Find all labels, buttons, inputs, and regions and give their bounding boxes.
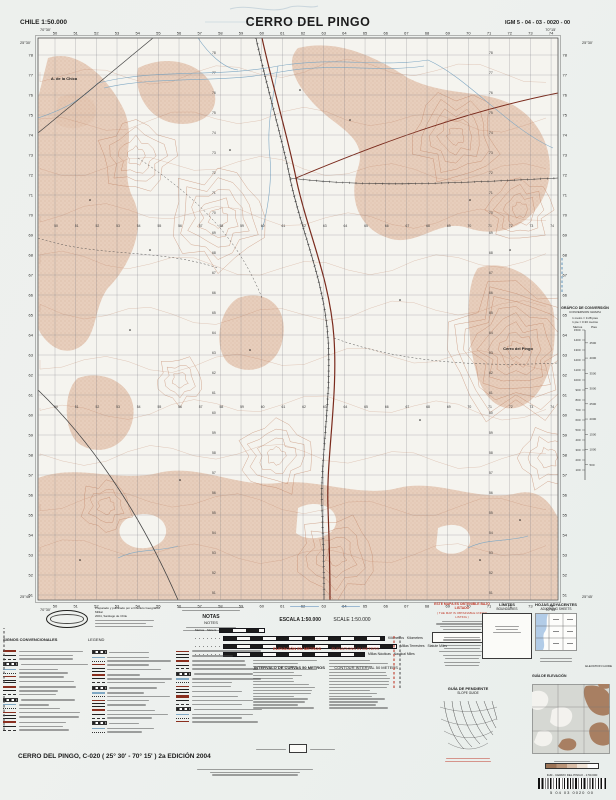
legend-symbol: [176, 665, 189, 666]
vertical-red-note: [393, 636, 395, 688]
grid-label: 1100: [574, 368, 581, 372]
legend-symbol: [3, 662, 18, 666]
grid-label: 59: [29, 432, 34, 437]
grid-label: 54: [563, 532, 568, 537]
grid-label: 55: [29, 512, 34, 517]
grid-label: 25°45': [582, 595, 593, 599]
grid-label: 800: [575, 398, 580, 402]
legend-row: [3, 712, 88, 714]
grid-label: 53: [115, 31, 120, 36]
grid-label: 51: [75, 405, 79, 409]
conversion-sub2: 1 pie = 0.30 metros: [556, 320, 614, 324]
grid-label: 57: [199, 224, 203, 228]
micro-text-line: [212, 774, 297, 775]
slope-guide-block: GUÍA DE PENDIENTE SLOPE GUIDE: [436, 686, 500, 762]
legend-row: [92, 731, 173, 733]
grid-label: 70: [212, 211, 216, 215]
grid-label: 51: [75, 224, 79, 228]
legend-row: [176, 654, 261, 658]
legend-row: [92, 660, 173, 662]
grid-label: 78: [29, 52, 34, 57]
micro-text-line: [445, 658, 478, 659]
grid-label: 65: [364, 405, 368, 409]
elevation-color-bar: [545, 763, 599, 769]
legend-row: [3, 729, 88, 731]
grid-label: 76: [489, 91, 493, 95]
micro-text-line: [445, 761, 492, 762]
grid-label: 54: [29, 532, 34, 537]
grid-label: 1300: [574, 348, 581, 352]
imprint-line: IGM - CERRO DEL PINGO - 1:50.000: [532, 773, 612, 777]
micro-text-line: [444, 648, 481, 649]
micro-text-line: [329, 672, 386, 673]
igm-seal: [46, 610, 88, 628]
grid-label: 63: [29, 352, 34, 357]
grid-label: 63: [323, 405, 327, 409]
grid-label: 52: [489, 571, 493, 575]
legend-row: [92, 696, 173, 698]
legend-row: [176, 689, 261, 693]
grid-label: 74: [29, 132, 34, 137]
legend-row: [176, 695, 261, 697]
legend-symbol: [3, 730, 16, 731]
micro-text-line: [329, 669, 369, 670]
grid-label: 70: [563, 212, 568, 217]
grid-label: 63: [563, 352, 568, 357]
grid-label: 54: [489, 531, 493, 535]
grid-label: 54: [137, 405, 141, 409]
legend-symbol: [92, 700, 105, 701]
micro-text-line: [329, 678, 390, 679]
micro-text-line: [253, 707, 314, 708]
legend-symbol: [176, 721, 189, 722]
legend-symbol: [3, 694, 16, 695]
micro-text-line: [253, 660, 317, 661]
grid-label: 51: [212, 591, 216, 595]
micro-text-line: [253, 687, 315, 688]
micro-text-line: [443, 639, 482, 640]
legend-row: [176, 672, 261, 676]
grid-label: 55: [157, 224, 161, 228]
legend-symbol: [176, 672, 191, 676]
grid-label: 75: [563, 112, 568, 117]
legend-row: [176, 700, 261, 702]
legend-symbol: [176, 704, 189, 705]
grid-label: 75: [29, 112, 34, 117]
legend-row: [3, 708, 88, 710]
micro-text-line: [253, 690, 312, 691]
grid-label: 4000: [590, 356, 597, 360]
grid-label: 71: [29, 192, 34, 197]
grid-label: 4500: [590, 341, 597, 345]
legend-row: [92, 703, 173, 707]
legend-row: [3, 694, 88, 696]
micro-text-line: [444, 662, 480, 663]
grid-label: 54: [137, 224, 141, 228]
legend-symbol: [92, 696, 105, 697]
legend-row: [176, 704, 261, 706]
legend-row: [3, 726, 88, 728]
legend-row: [176, 717, 261, 719]
legend-row: [92, 686, 173, 690]
micro-text-line: [329, 696, 372, 697]
grid-label: 62: [212, 371, 216, 375]
micro-text-line: [329, 690, 370, 691]
elevation-guide-block: GUÍA DE ELEVACIÓN ELEVATION GUIDE IGM - …: [532, 664, 612, 795]
grid-label: 59: [240, 224, 244, 228]
legend-symbol: [3, 690, 16, 691]
legend-row: [176, 664, 261, 666]
grid-label: 61: [281, 405, 285, 409]
grid-label: 62: [489, 371, 493, 375]
legend-row: [3, 704, 88, 706]
grid-label: 64: [563, 332, 568, 337]
grid-label: 1500: [574, 328, 581, 332]
micro-text-line: [444, 637, 481, 638]
grid-label: 55: [489, 511, 493, 515]
grid-label: 67: [404, 31, 409, 36]
grid-label: 59: [240, 405, 244, 409]
legend-symbol: [176, 707, 191, 711]
legend-symbol: [92, 709, 105, 711]
grid-label: 58: [219, 224, 223, 228]
legend-symbol: [3, 698, 18, 702]
grid-label: 58: [218, 31, 223, 36]
grid-label: 25°30': [20, 41, 31, 45]
grid-label: 61: [563, 392, 568, 397]
grid-label: 74: [212, 131, 216, 135]
grid-label: 70: [468, 405, 472, 409]
grid-label: 57: [212, 471, 216, 475]
place-label: A. de la Chica: [51, 76, 78, 81]
grid-label: 54: [135, 31, 140, 36]
grid-label: 71: [212, 191, 216, 195]
grid-label: 75: [489, 111, 493, 115]
grid-label: 300: [575, 448, 580, 452]
legend-row: [92, 668, 173, 672]
grid-label: 64: [29, 332, 34, 337]
grid-label: 72: [509, 405, 513, 409]
grid-label: 100: [575, 468, 580, 472]
grid-label: 73: [489, 151, 493, 155]
legend-row: [92, 682, 173, 684]
grid-label: 53: [116, 224, 120, 228]
legend-symbol: [92, 674, 105, 676]
legend-row: [176, 678, 261, 680]
grid-label: 68: [426, 224, 430, 228]
grid-label: 64: [489, 331, 493, 335]
legend-symbol: [92, 657, 105, 658]
grid-label: 51: [73, 604, 78, 609]
grid-label: 50: [54, 224, 58, 228]
sheet-number: IGM 5 - 04 - 03 - 0020 - 00: [505, 20, 570, 26]
grid-label: 58: [219, 405, 223, 409]
micro-text-line: [95, 620, 154, 621]
legend-row: [92, 674, 173, 676]
grid-label: 64: [212, 331, 216, 335]
grid-label: 59: [239, 31, 244, 36]
grid-label: 56: [178, 405, 182, 409]
grid-label: 77: [212, 71, 216, 75]
grid-label: 54: [212, 531, 216, 535]
legend-title-es: SIGNOS CONVENCIONALES: [3, 637, 57, 642]
grid-label: 70: [29, 212, 34, 217]
grid-label: 76: [29, 92, 34, 97]
legend-row: [3, 698, 88, 702]
grid-label: 53: [29, 552, 34, 557]
legend-row: [3, 715, 88, 719]
credits-line: Preparado y publicado por el Instituto G…: [95, 606, 169, 614]
legend-row: [176, 682, 261, 684]
micro-text-line: [446, 758, 489, 759]
grid-label: 57: [29, 472, 34, 477]
grid-label: 65: [363, 31, 368, 36]
legend-symbol: [176, 654, 189, 658]
grid-label: 71: [488, 224, 492, 228]
grid-label: 61: [29, 392, 34, 397]
legend-row: [92, 678, 173, 680]
grid-label: 68: [489, 251, 493, 255]
micro-text-line: [290, 606, 319, 607]
legend-row: [3, 650, 88, 652]
grid-label: 67: [563, 272, 568, 277]
grid-label: 50: [54, 405, 58, 409]
micro-text-line: [329, 660, 370, 661]
grid-label: 2000: [590, 417, 597, 421]
legend-symbol: [176, 718, 189, 719]
legend-row: [176, 714, 261, 716]
grid-label: 61: [280, 31, 285, 36]
grid-label: 62: [563, 372, 568, 377]
grid-label: 66: [29, 292, 34, 297]
grid-label: 72: [489, 171, 493, 175]
grid-label: 71: [489, 191, 493, 195]
grid-label: 67: [489, 271, 493, 275]
print-check-box: [289, 744, 307, 753]
micro-text-line: [329, 681, 389, 682]
grid-label: 58: [29, 452, 34, 457]
adjoining-grid: [535, 613, 577, 651]
legend-row: [176, 650, 261, 652]
grid-label: 62: [301, 31, 306, 36]
legend-row: [3, 690, 88, 692]
grid-label: 56: [212, 491, 216, 495]
micro-text-line: [329, 666, 372, 667]
grid-label: 67: [405, 405, 409, 409]
micro-text-line: [443, 629, 481, 630]
grid-label: 53: [489, 551, 493, 555]
grid-label: 53: [212, 551, 216, 555]
legend-symbol: [92, 692, 105, 693]
elev-guide-title-es: GUÍA DE ELEVACIÓN: [532, 674, 566, 678]
legend-row: [92, 692, 173, 694]
grid-label: 77: [489, 71, 493, 75]
grid-label: 58: [489, 451, 493, 455]
grid-label: 74: [489, 131, 493, 135]
micro-text-line: [443, 645, 482, 646]
grid-label: 1000: [590, 448, 597, 452]
grid-label: 3500: [590, 371, 597, 375]
grid-label: 60: [489, 411, 493, 415]
legend-symbol: [3, 669, 16, 670]
grid-label: 69: [447, 405, 451, 409]
grid-label: 50: [53, 604, 58, 609]
grid-label: 50: [53, 31, 58, 36]
grid-label: 73: [530, 224, 534, 228]
grid-label: 63: [323, 224, 327, 228]
micro-text-line: [554, 761, 591, 762]
scale-label-en: SCALE 1:50.000: [333, 617, 370, 623]
grid-label: 60: [261, 224, 265, 228]
legend-row: [3, 721, 88, 723]
grid-label: 51: [73, 31, 78, 36]
grid-label: 68: [426, 405, 430, 409]
grid-label: 53: [563, 552, 568, 557]
legend-symbol: [92, 721, 107, 725]
grid-label: 72: [563, 172, 568, 177]
grid-label: 69: [446, 31, 451, 36]
grid-label: 70: [466, 31, 471, 36]
grid-label: 58: [563, 452, 568, 457]
grid-label: 63: [212, 351, 216, 355]
elevation-note-en: ELEVATIONS IN METERS: [331, 646, 378, 651]
grid-label: 52: [95, 405, 99, 409]
grid-label: 66: [563, 292, 568, 297]
grid-label: 73: [528, 31, 533, 36]
legend-symbol: [92, 668, 105, 672]
marginal-notes-columns: [253, 658, 395, 709]
legend-row: [176, 660, 261, 662]
legend-row: [176, 668, 261, 670]
micro-text-line: [442, 621, 482, 622]
grid-label: 67: [29, 272, 34, 277]
conversion-col-es: Metros: [573, 325, 582, 329]
slope-fan-diagram: [438, 697, 498, 751]
legend-symbol: [3, 680, 16, 684]
grid-label: 61: [281, 224, 285, 228]
micro-text-line: [329, 687, 387, 688]
grid-label: 69: [447, 224, 451, 228]
grid-label: 67: [405, 224, 409, 228]
conversion-title-en: CONVERSION GRAPH: [556, 310, 614, 314]
grid-label: 66: [383, 31, 388, 36]
legend-row: [3, 662, 88, 666]
grid-label: 72: [29, 172, 34, 177]
grid-label: 55: [156, 31, 161, 36]
grid-label: 25°30': [582, 41, 593, 45]
grid-label: 76: [212, 91, 216, 95]
grid-label: 200: [575, 458, 580, 462]
grid-label: 600: [575, 418, 580, 422]
micro-text-line: [329, 684, 389, 685]
legend-symbol: [3, 673, 16, 674]
slope-guide-title-en: SLOPE GUIDE: [436, 691, 500, 695]
scale-label-es: ESCALA 1:50.000: [279, 617, 321, 623]
grid-label: 66: [212, 291, 216, 295]
grid-label: 78: [563, 52, 568, 57]
credits-block: Preparado y publicado por el Instituto G…: [95, 606, 169, 627]
grid-label: 51: [563, 592, 568, 597]
grid-label: 73: [563, 152, 568, 157]
grid-label: 56: [29, 492, 34, 497]
micro-text-line: [496, 629, 518, 630]
micro-text-line: [440, 626, 485, 627]
legend-row: [92, 721, 173, 725]
grid-label: 65: [212, 311, 216, 315]
grid-label: 69: [29, 232, 34, 237]
grid-label: 78: [489, 51, 493, 55]
grid-label: 68: [212, 251, 216, 255]
legend-row: [3, 669, 88, 671]
grid-label: 59: [212, 431, 216, 435]
grid-label: 69: [212, 231, 216, 235]
grid-label: 59: [563, 432, 568, 437]
legend-title-en: LEGEND: [88, 637, 104, 642]
grid-label: 71: [487, 31, 492, 36]
grid-label: 59: [489, 431, 493, 435]
grid-label: 55: [212, 511, 216, 515]
legend-symbol: [176, 700, 189, 701]
grid-label: 55: [563, 512, 568, 517]
micro-text-line: [310, 749, 335, 750]
grid-label: 73: [212, 151, 216, 155]
grid-label: 400: [575, 438, 580, 442]
grid-label: 57: [197, 31, 202, 36]
grid-label: 71: [488, 405, 492, 409]
micro-text-line: [197, 769, 314, 770]
barcode: [538, 778, 606, 789]
legend-row: [92, 700, 173, 702]
micro-text-line: [329, 701, 378, 702]
micro-text-line: [210, 772, 299, 773]
legend-row: [92, 728, 173, 730]
grid-label: 51: [489, 591, 493, 595]
elevation-note-es: ELEVACIÓN EN METROS: [273, 646, 321, 651]
grid-label: 66: [385, 405, 389, 409]
grid-label: 60: [29, 412, 34, 417]
grid-label: 60: [563, 412, 568, 417]
legend-symbol: [176, 668, 189, 669]
legend-row: [176, 686, 261, 688]
grid-label: 67: [212, 271, 216, 275]
legend-symbol: [3, 712, 16, 713]
micro-text-line: [253, 669, 317, 670]
legend-block: SIGNOS CONVENCIONALES LEGEND: [3, 628, 251, 733]
elevation-guide-map: [532, 684, 610, 754]
conversion-col-en: Pies: [591, 325, 597, 329]
micro-text-line: [445, 665, 479, 666]
grid-label: 56: [177, 31, 182, 36]
grid-label: 71: [563, 192, 568, 197]
vertical-note: [399, 636, 401, 688]
micro-text-line: [329, 707, 388, 708]
grid-label: 64: [342, 31, 347, 36]
grid-label: 74: [563, 132, 568, 137]
grid-label: 74: [550, 405, 554, 409]
grid-label: 57: [199, 405, 203, 409]
grid-label: 78: [212, 51, 216, 55]
legend-row: [176, 707, 261, 711]
legend-symbol: [3, 686, 16, 688]
grid-label: 62: [302, 405, 306, 409]
grid-label: 62: [29, 372, 34, 377]
micro-text-line: [493, 632, 522, 633]
micro-text-line: [443, 655, 480, 656]
legend-symbol: [176, 682, 189, 683]
grid-label: 1000: [574, 378, 581, 382]
legend-row: [3, 680, 88, 684]
micro-text-line: [540, 661, 572, 662]
